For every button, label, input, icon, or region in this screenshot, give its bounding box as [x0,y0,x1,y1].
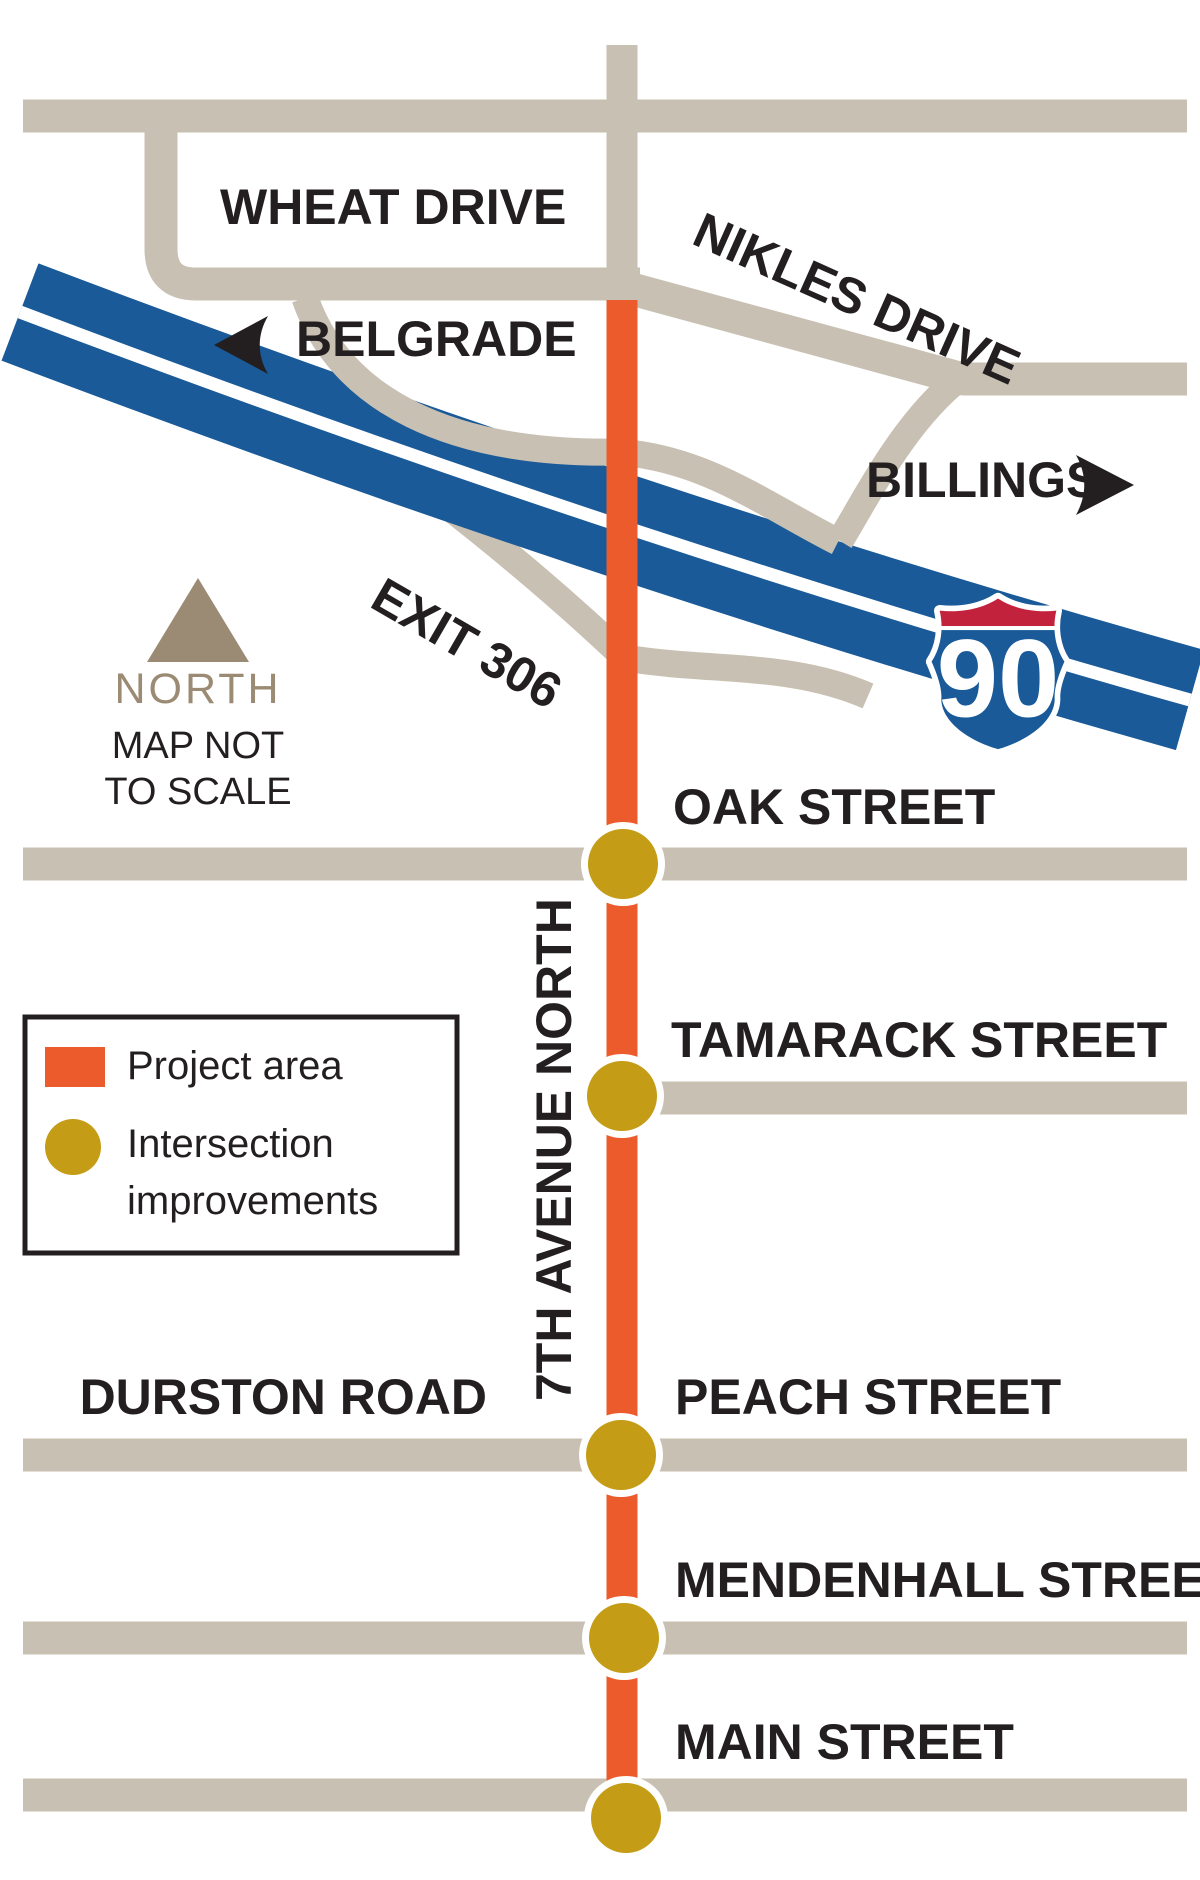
legend: Project area Intersection improvements [25,1017,457,1253]
label-scale-line1: MAP NOT [112,725,284,767]
intersection-marker-tamarack [587,1061,657,1131]
legend-project-area-swatch [45,1047,105,1087]
project-map-page: 90 WHEAT DRIVE NIKLES DRIVE BELGRADE BIL… [0,0,1200,1875]
street-grid [23,45,1187,1795]
label-north: NORTH [114,665,281,713]
label-wheat-drive: WHEAT DRIVE [220,179,566,235]
label-peach-street: PEACH STREET [675,1369,1061,1425]
legend-intersection-label-line1: Intersection [127,1122,334,1166]
label-scale-line2: TO SCALE [104,771,291,813]
legend-project-area-label: Project area [127,1044,343,1088]
label-oak-street: OAK STREET [673,779,995,835]
label-belgrade: BELGRADE [296,311,577,367]
interstate-number-label: 90 [937,618,1060,741]
label-mendenhall-street: MENDENHALL STREET [675,1552,1200,1608]
project-map: 90 WHEAT DRIVE NIKLES DRIVE BELGRADE BIL… [0,0,1200,1875]
legend-intersection-swatch [45,1119,101,1175]
label-durston-road: DURSTON ROAD [80,1369,487,1425]
label-billings: BILLINGS [866,452,1099,508]
label-main-street: MAIN STREET [675,1714,1014,1770]
label-tamarack-street: TAMARACK STREET [671,1012,1167,1068]
intersection-marker-oak [588,829,658,899]
label-7th-avenue-north: 7TH AVENUE NORTH [526,898,582,1401]
interstate-90-shield-icon: 90 [932,598,1065,749]
intersection-marker-main [591,1783,661,1853]
intersection-marker-mendenhall [589,1603,659,1673]
north-arrow-icon [147,578,249,662]
legend-intersection-label-line2: improvements [127,1179,378,1223]
intersection-marker-peach [586,1420,656,1490]
